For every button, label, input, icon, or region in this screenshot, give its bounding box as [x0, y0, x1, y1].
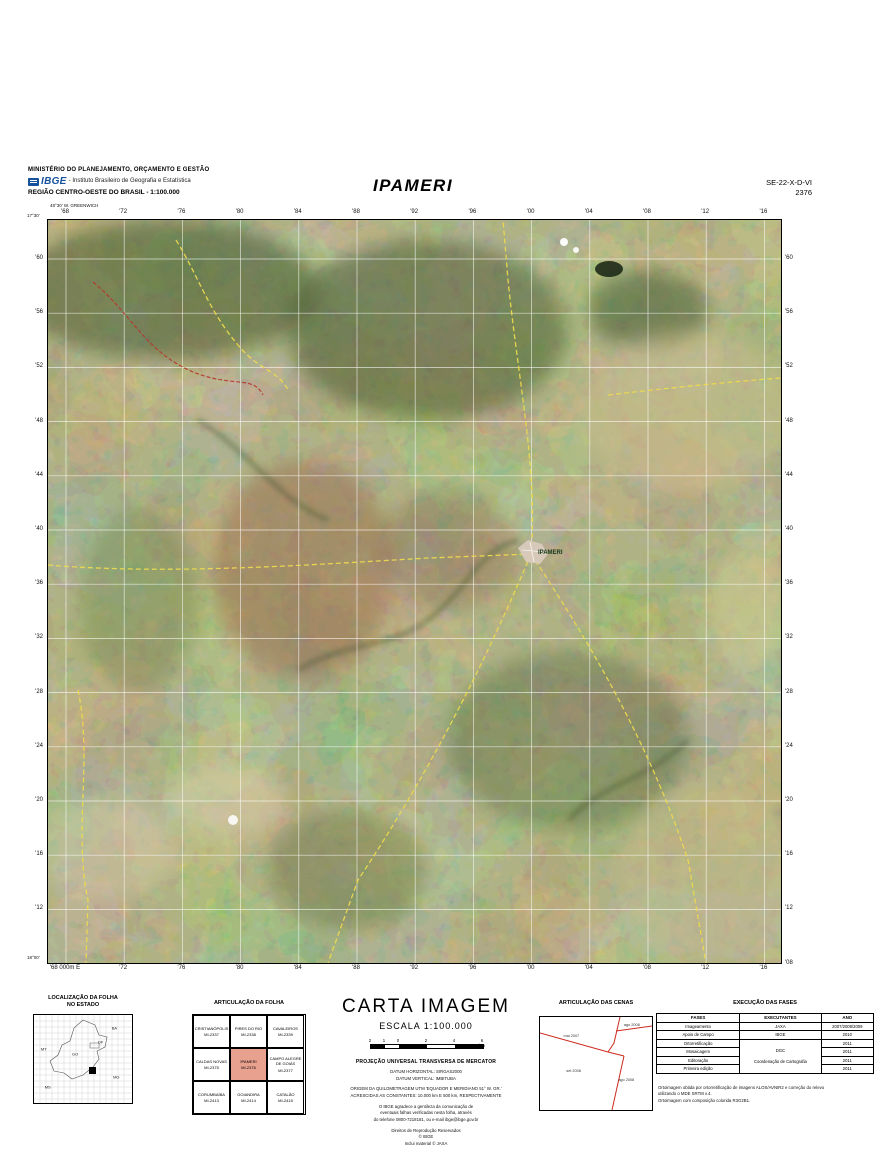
utm-easting-top: '92 [410, 209, 418, 215]
direitos-lines: Direitos de Reprodução Reservados© IBGEI… [330, 1128, 522, 1148]
state-outline-svg [34, 1015, 132, 1103]
state-label: MG [113, 1074, 119, 1079]
ibge-acronym: IBGE [41, 176, 67, 189]
utm-easting-top: '04 [585, 209, 593, 215]
geo-corner-label: 48°30' W. GREENWICH [50, 203, 98, 208]
cenas-block: ARTICULAÇÃO DAS CENAS mai 2007ago 2008se… [535, 1000, 657, 1111]
scale-tick-label: 0 [397, 1038, 399, 1043]
state-outline [50, 1020, 107, 1079]
scene-date-label: set 2008 [566, 1069, 581, 1073]
fase-cell: Editoração [657, 1056, 740, 1065]
utm-northing-left: '52 [35, 363, 43, 369]
state-label: MT [41, 1046, 47, 1051]
state-label: BA [112, 1025, 117, 1030]
utm-northing-right: '56 [785, 309, 793, 315]
articulacao-folha-title: ARTICULAÇÃO DA FOLHA [188, 1000, 310, 1007]
utm-northing-right: '24 [785, 743, 793, 749]
carta-title: CARTA IMAGEM [330, 996, 522, 1018]
scene-date-label: ago 2008 [618, 1078, 634, 1082]
scale-tick-label: 2 [425, 1038, 427, 1043]
sheet-index-name: GOIANDIRA [237, 1092, 259, 1097]
fine-print-line: do telefone 0800-7218181, ou e-mail ibge… [330, 1117, 522, 1124]
sheet-index-name: CATALÃO [276, 1092, 294, 1097]
utm-northing-right: '60 [785, 255, 793, 261]
utm-easting-top: '96 [468, 209, 476, 215]
utm-northing-right: '08 [785, 960, 793, 966]
executante-cell: IBGE [740, 1031, 821, 1040]
utm-northing-right: '36 [785, 580, 793, 586]
utm-easting-bottom: '84 [294, 965, 302, 971]
sheet-index-code: MI-2377 [278, 1068, 293, 1073]
scene-boundaries-svg [540, 1017, 652, 1110]
scale-tick-label: 6 km [479, 1038, 485, 1048]
carta-imagem-block: CARTA IMAGEM ESCALA 1:100.000 210246 km … [330, 996, 522, 1148]
fases-title: EXECUÇÃO DAS FASES [656, 1000, 874, 1007]
sheet-code: SE-22-X-D-VI [766, 178, 812, 188]
scene-date-label: ago 2008 [624, 1023, 640, 1027]
utm-easting-top: '80 [236, 209, 244, 215]
fases-row: ImageamentoJAXA2007/2008/2009 [657, 1022, 874, 1031]
utm-northing-left: '16 [35, 851, 43, 857]
sheet-index-code: MI-2413 [204, 1098, 219, 1103]
utm-northing-left: '44 [35, 472, 43, 478]
utm-northing-left: '36 [35, 580, 43, 586]
utm-northing-left: '20 [35, 797, 43, 803]
sheet-index-cell: CAMPO ALEGRE DE GOIÁSMI-2377 [267, 1048, 304, 1081]
scale-bar-segment [385, 1045, 399, 1048]
sheet-index-code: MI-2415 [278, 1098, 293, 1103]
fases-notes: Ortoimagem obtida por ortorretificação d… [658, 1085, 874, 1105]
fase-cell: Mosaicagem [657, 1048, 740, 1057]
fases-row: Apoio de CampoIBGE2010 [657, 1031, 874, 1040]
utm-northing-right: '40 [785, 526, 793, 532]
scale-tick-label: 2 [369, 1038, 371, 1043]
fases-block: EXECUÇÃO DAS FASES FASESEXECUTANTESANO I… [656, 1000, 874, 1105]
geo-corner-label: 18°00' [27, 955, 40, 960]
fine-print-line: DATUM HORIZONTAL: SIRGAS2000 [330, 1069, 522, 1076]
fase-cell: Primeira edição [657, 1065, 740, 1074]
sheet-index-cell: CATALÃOMI-2415 [267, 1081, 304, 1114]
utm-northing-left: '12 [35, 905, 43, 911]
projection-line: PROJEÇÃO UNIVERSAL TRANSVERSA DE MERCATO… [330, 1059, 522, 1065]
utm-easting-bottom: '68 000m E [50, 965, 80, 971]
datum-lines: DATUM HORIZONTAL: SIRGAS2000DATUM VERTIC… [330, 1069, 522, 1082]
utm-northing-left: '48 [35, 418, 43, 424]
utm-easting-bottom: '00 [527, 965, 535, 971]
fine-print-line: ORIGEM DA QUILOMETRAGEM UTM 'EQUADOR E M… [330, 1086, 522, 1093]
utm-easting-bottom: '16 [759, 965, 767, 971]
utm-easting-top: '12 [701, 209, 709, 215]
articulacao-folha-block: ARTICULAÇÃO DA FOLHA CRISTIANÓPOLISMI-23… [188, 1000, 310, 1115]
ano-cell: 2011 [821, 1056, 873, 1065]
fine-print-line: Direitos de Reprodução Reservados [330, 1128, 522, 1135]
sheet-index-name: CAMPO ALEGRE DE GOIÁS [268, 1056, 303, 1066]
state-label: MS [45, 1085, 51, 1090]
utm-easting-bottom: '96 [468, 965, 476, 971]
utm-northing-right: '16 [785, 851, 793, 857]
fine-print-line: O IBGE agradece a gentileza da comunicaç… [330, 1104, 522, 1111]
sheet-index-name: PIRES DO RIO [235, 1026, 262, 1031]
utm-northing-right: '12 [785, 905, 793, 911]
utm-easting-bottom: '08 [643, 965, 651, 971]
scale-tick-label: 4 [453, 1038, 455, 1043]
sheet-index-code: MI-2414 [241, 1098, 256, 1103]
scale-bar-segment [371, 1045, 385, 1048]
utm-northing-right: '20 [785, 797, 793, 803]
sheet-index-name: CRISTIANÓPOLIS [195, 1026, 229, 1031]
executante-cell: JAXA [740, 1022, 821, 1031]
fases-header: ANO [821, 1014, 873, 1023]
fases-row: OrtorretificaçãoDGCCoordenação de Cartog… [657, 1039, 874, 1048]
fine-print-line: © IBGE [330, 1134, 522, 1141]
sheet-title: IPAMERI [373, 176, 453, 196]
utm-easting-bottom: '80 [236, 965, 244, 971]
utm-northing-right: '48 [785, 418, 793, 424]
scale-bar-segments [370, 1044, 484, 1049]
utm-easting-top: '76 [177, 209, 185, 215]
origem-lines: ORIGEM DA QUILOMETRAGEM UTM 'EQUADOR E M… [330, 1086, 522, 1099]
utm-easting-bottom: '12 [701, 965, 709, 971]
fases-header: FASES [657, 1014, 740, 1023]
satellite-image: IPAMERI [48, 220, 781, 963]
utm-easting-bottom: '88 [352, 965, 360, 971]
sheet-index-code: MI-2375 [204, 1065, 219, 1070]
utm-easting-bottom: '04 [585, 965, 593, 971]
sheet-location-marker [89, 1067, 96, 1074]
satellite-map: IPAMERI [47, 219, 782, 964]
state-label: DF [98, 1039, 103, 1044]
utm-northing-left: '24 [35, 743, 43, 749]
scene-index-map: mai 2007ago 2008set 2008ago 2008 [539, 1016, 653, 1111]
utm-easting-bottom: '72 [119, 965, 127, 971]
sheet-code-block: SE-22-X-D-VI 2376 [766, 178, 812, 198]
state-label: GO [72, 1052, 78, 1057]
fine-print-line: ACRESCIDAS AS CONSTANTES: 10.000 km E 50… [330, 1093, 522, 1100]
utm-easting-top: '88 [352, 209, 360, 215]
ano-cell: 2011 [821, 1065, 873, 1074]
sheet-index-cell: GOIANDIRAMI-2414 [230, 1081, 267, 1114]
utm-easting-top: '00 [527, 209, 535, 215]
utm-northing-left: '28 [35, 689, 43, 695]
ano-cell: 2007/2008/2009 [821, 1022, 873, 1031]
ministry-line: MINISTÉRIO DO PLANEJAMENTO, ORÇAMENTO E … [28, 167, 209, 175]
sheet-index-name: CAVALEIROS [273, 1026, 298, 1031]
sheet-index-cell: PIRES DO RIOMI-2338 [230, 1015, 267, 1048]
utm-northing-right: '44 [785, 472, 793, 478]
utm-northing-right: '28 [785, 689, 793, 695]
fases-note-line: utilizando o MDE SRTM v.4. [658, 1091, 874, 1098]
fase-cell: Imageamento [657, 1022, 740, 1031]
localizacao-block: LOCALIZAÇÃO DA FOLHA NO ESTADO MTBAGODFM… [20, 995, 146, 1104]
fases-note-line: Ortoimagem obtida por ortorretificação d… [658, 1085, 874, 1092]
fases-header: EXECUTANTES [740, 1014, 821, 1023]
utm-northing-right: '32 [785, 634, 793, 640]
cenas-title: ARTICULAÇÃO DAS CENAS [535, 1000, 657, 1007]
fine-print-line: DATUM VERTICAL: IMBITUBA [330, 1076, 522, 1083]
fases-table: FASESEXECUTANTESANO ImageamentoJAXA2007/… [656, 1013, 874, 1074]
sheet-header: MINISTÉRIO DO PLANEJAMENTO, ORÇAMENTO E … [28, 167, 209, 197]
utm-easting-top: '16 [759, 209, 767, 215]
aviso-lines: O IBGE agradece a gentileza da comunicaç… [330, 1104, 522, 1124]
ibge-logo-icon [28, 178, 39, 186]
ibge-institute: - Instituto Brasileiro de Geografia e Es… [69, 178, 191, 186]
sheet-index-grid: CRISTIANÓPOLISMI-2337PIRES DO RIOMI-2338… [192, 1014, 306, 1115]
sheet-index-cell: CORUMBAÍBAMI-2413 [193, 1081, 230, 1114]
scale-bar: 210246 km [368, 1038, 484, 1050]
utm-northing-left: '40 [35, 526, 43, 532]
locator-grid [34, 1015, 132, 1103]
ano-cell: 2011 [821, 1039, 873, 1048]
scale-text: ESCALA 1:100.000 [330, 1021, 522, 1031]
sheet-index-code: MI-2376 [241, 1065, 256, 1070]
sheet-index-name: IPAMERI [240, 1059, 256, 1064]
sheet-index-name: CALDAS NOVAS [196, 1059, 227, 1064]
executante-cell: DGCCoordenação de Cartografia [740, 1039, 821, 1073]
geo-corner-label: 17°30' [27, 213, 40, 218]
utm-easting-top: '72 [119, 209, 127, 215]
fine-print-line: Inclui material © JAXA [330, 1141, 522, 1148]
sheet-number: 2376 [766, 188, 812, 198]
localizacao-title: LOCALIZAÇÃO DA FOLHA NO ESTADO [20, 995, 146, 1009]
ibge-logo-row: IBGE - Instituto Brasileiro de Geografia… [28, 176, 209, 189]
utm-easting-top: '68 [61, 209, 69, 215]
state-locator-map: MTBAGODFMGMS [33, 1014, 133, 1104]
utm-northing-left: '60 [35, 255, 43, 261]
fase-cell: Ortorretificação [657, 1039, 740, 1048]
utm-easting-bottom: '92 [410, 965, 418, 971]
ano-cell: 2010 [821, 1031, 873, 1040]
sheet-index-name: CORUMBAÍBA [198, 1092, 225, 1097]
scene-date-label: mai 2007 [564, 1034, 580, 1038]
utm-easting-bottom: '76 [177, 965, 185, 971]
fase-cell: Apoio de Campo [657, 1031, 740, 1040]
sheet-index-code: MI-2338 [241, 1032, 256, 1037]
sheet-index-cell: CALDAS NOVASMI-2375 [193, 1048, 230, 1081]
utm-northing-left: '32 [35, 634, 43, 640]
sheet-index-code: MI-2337 [204, 1032, 219, 1037]
utm-northing-right: '52 [785, 363, 793, 369]
sheet-index-cell: IPAMERIMI-2376 [230, 1048, 267, 1081]
sheet-index-cell: CRISTIANÓPOLISMI-2337 [193, 1015, 230, 1048]
ano-cell: 2011 [821, 1048, 873, 1057]
utm-northing-left: '56 [35, 309, 43, 315]
utm-easting-top: '84 [294, 209, 302, 215]
region-line: REGIÃO CENTRO-OESTE DO BRASIL - 1:100.00… [28, 189, 209, 197]
sheet-index-code: MI-2339 [278, 1032, 293, 1037]
fine-print-line: eventuais falhas verificadas nesta folha… [330, 1110, 522, 1117]
fases-note-line: Ortoimagem com composição colorida R3G2B… [658, 1098, 874, 1105]
map-sheet: MINISTÉRIO DO PLANEJAMENTO, ORÇAMENTO E … [0, 0, 892, 1166]
scale-tick-label: 1 [383, 1038, 385, 1043]
utm-easting-top: '08 [643, 209, 651, 215]
city-label: IPAMERI [538, 550, 563, 556]
scale-bar-segment [427, 1045, 455, 1048]
scale-bar-segment [399, 1045, 427, 1048]
sheet-index-cell: CAVALEIROSMI-2339 [267, 1015, 304, 1048]
